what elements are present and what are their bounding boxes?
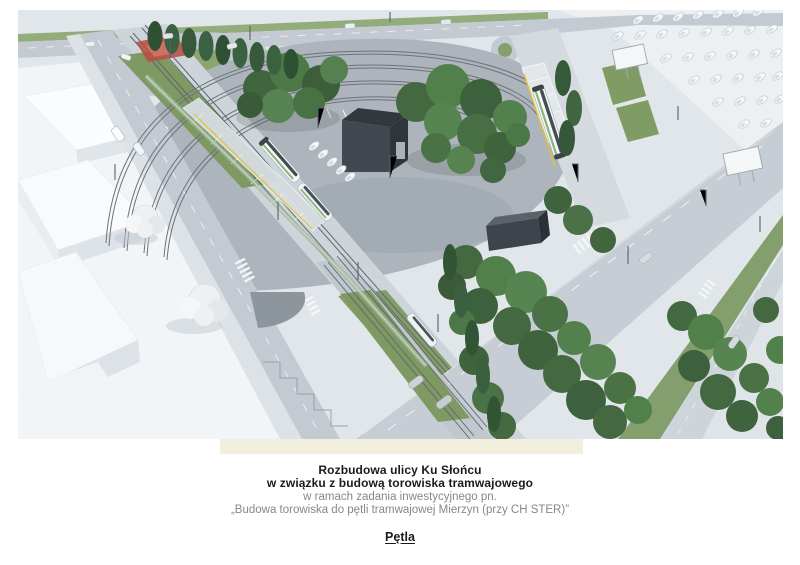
visualization-svg xyxy=(18,10,783,439)
tram-loop-visualization xyxy=(18,10,783,439)
caption-block: Rozbudowa ulicy Ku Słońcu w związku z bu… xyxy=(0,464,800,544)
page: Rozbudowa ulicy Ku Słońcu w związku z bu… xyxy=(0,0,800,565)
caption-subtitle-line2: „Budowa torowiska do pętli tramwajowej M… xyxy=(0,504,800,517)
caption-subtitle-line1: w ramach zadania inwestycyjnego pn. xyxy=(0,491,800,504)
loop-building xyxy=(342,108,408,172)
footer-accent-strip xyxy=(220,439,583,454)
caption-label-petla: Pętla xyxy=(0,530,800,544)
caption-title-line1: Rozbudowa ulicy Ku Słońcu xyxy=(0,464,800,477)
caption-title-line2: w związku z budową torowiska tramwajoweg… xyxy=(0,477,800,490)
